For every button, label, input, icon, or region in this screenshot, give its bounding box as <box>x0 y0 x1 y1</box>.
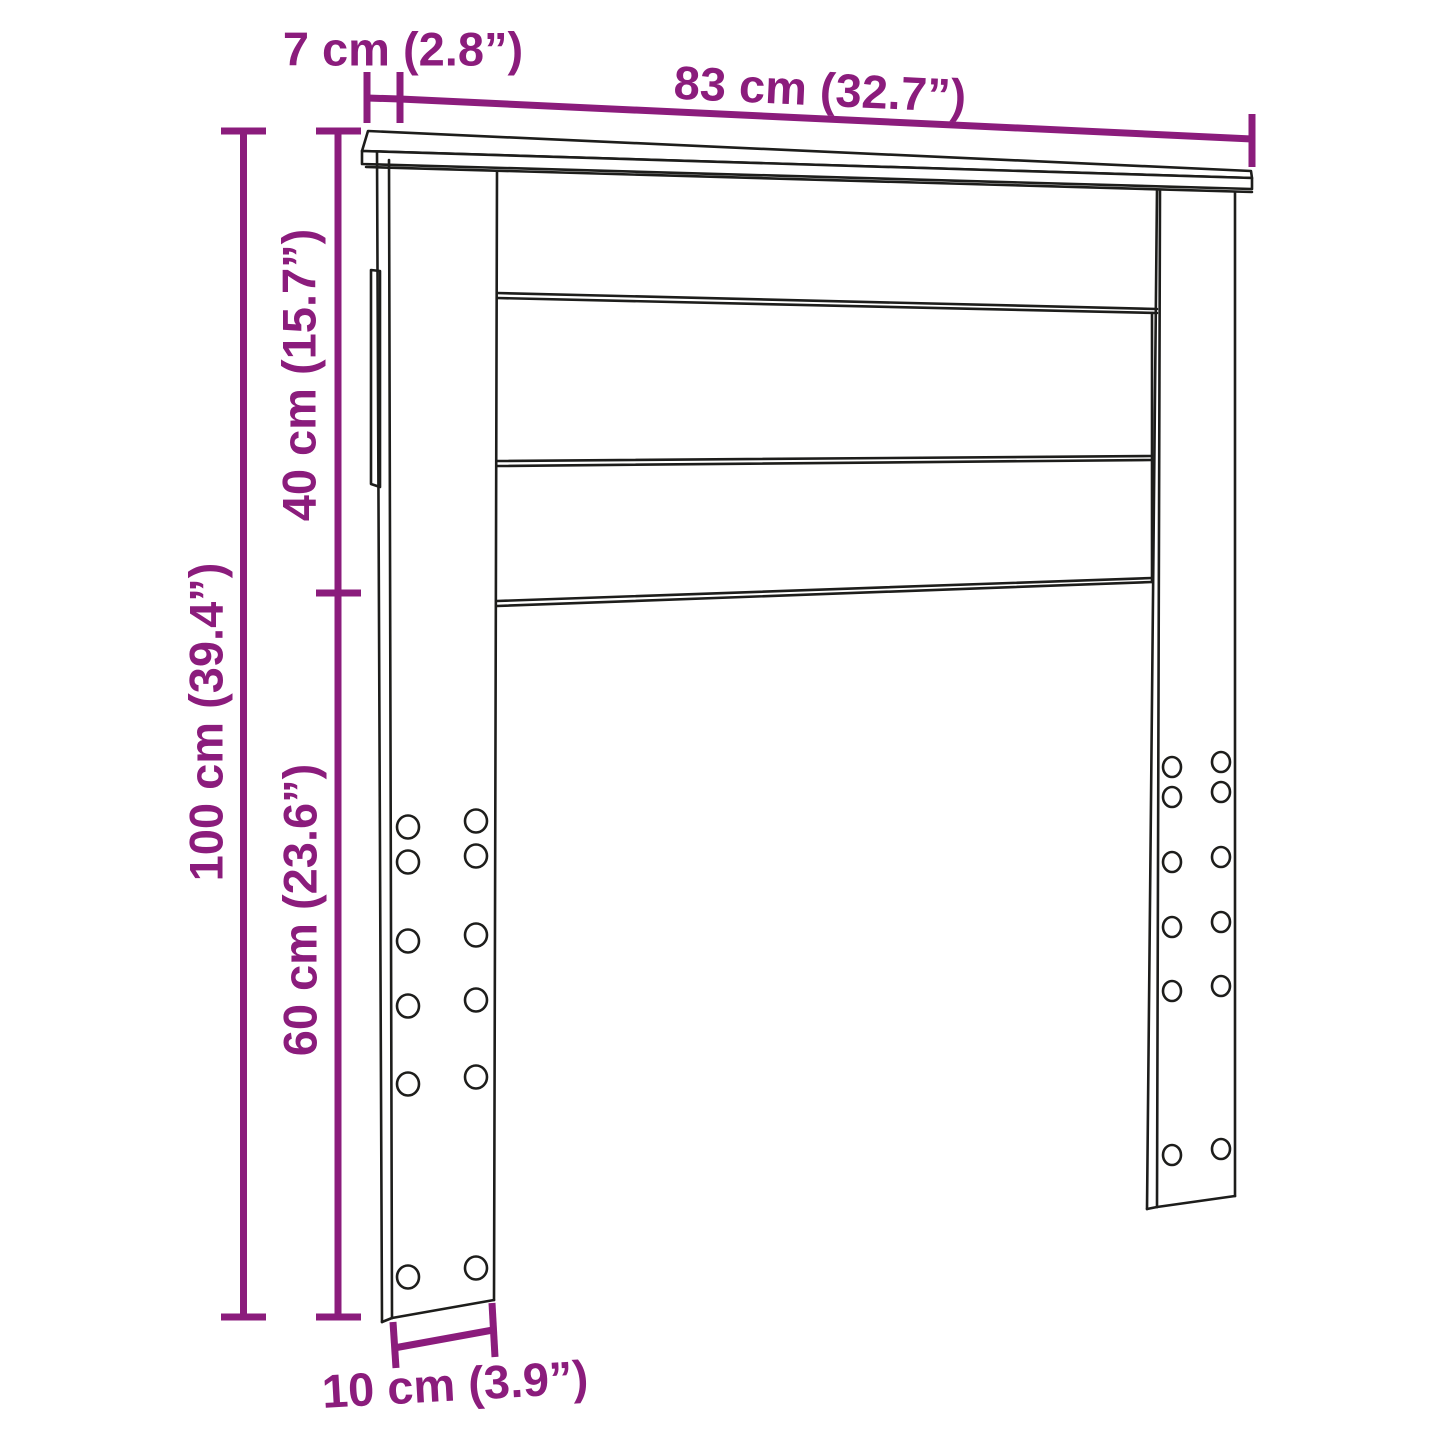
bolt-hole <box>397 995 419 1018</box>
headboard-slats <box>497 293 1157 606</box>
bolt-hole <box>465 924 487 947</box>
bolt-hole <box>1212 847 1230 867</box>
bolt-hole <box>465 989 487 1012</box>
bolt-hole <box>397 851 419 874</box>
diagram-canvas: 7 cm (2.8”) 83 cm (32.7”) 40 cm (15.7”) … <box>0 0 1445 1445</box>
bolt-hole <box>1163 852 1181 872</box>
bolt-hole <box>465 810 487 833</box>
top-board <box>362 131 1252 192</box>
bolt-hole <box>1212 912 1230 932</box>
bolt-holes-left-leg <box>397 810 487 1289</box>
bolt-hole <box>1163 787 1181 807</box>
bolt-hole <box>1212 1139 1230 1159</box>
bolt-hole <box>1163 1145 1181 1165</box>
dim-label-top-width: 83 cm (32.7”) <box>673 59 967 120</box>
bolt-hole <box>397 1266 419 1289</box>
bolt-hole <box>465 1257 487 1280</box>
bolt-hole <box>1163 917 1181 937</box>
dim-label-height-total: 100 cm (39.4”) <box>183 563 230 882</box>
right-leg <box>1147 190 1235 1209</box>
dim-label-height-lower: 60 cm (23.6”) <box>277 764 324 1057</box>
bolt-hole <box>397 930 419 953</box>
dim-label-top-small: 7 cm (2.8”) <box>283 26 523 73</box>
slat-bottom-line <box>497 578 1152 601</box>
bolt-hole <box>1163 981 1181 1001</box>
bolt-holes-right-leg <box>1163 752 1230 1165</box>
bolt-hole <box>397 816 419 839</box>
bolt-hole <box>1212 752 1230 772</box>
bolt-hole <box>1212 976 1230 996</box>
slat-bottom-line <box>497 582 1152 606</box>
bolt-hole <box>1212 782 1230 802</box>
bolt-hole <box>1163 757 1181 777</box>
bolt-hole <box>465 1066 487 1089</box>
bolt-hole <box>397 1073 419 1096</box>
bolt-hole <box>465 845 487 868</box>
left-leg <box>371 152 497 1322</box>
dim-label-height-upper: 40 cm (15.7”) <box>276 229 323 522</box>
